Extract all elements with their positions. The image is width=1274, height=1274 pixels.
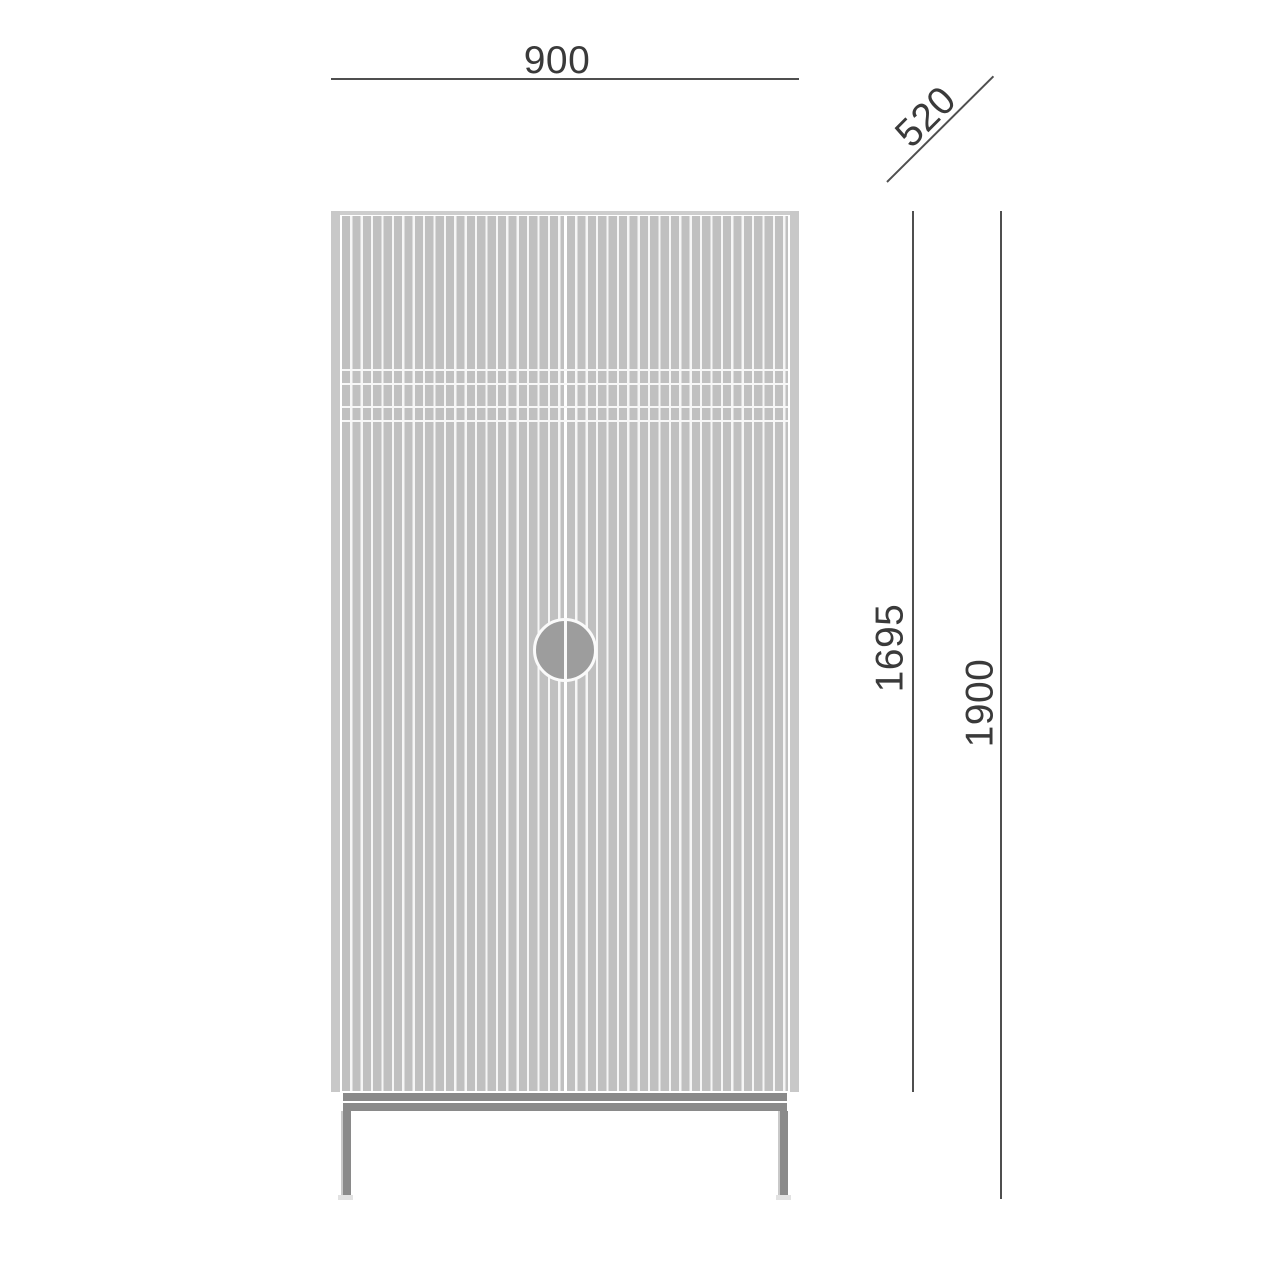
right-foot xyxy=(776,1195,791,1200)
body-height-dimension-line xyxy=(912,211,914,1092)
left-leg xyxy=(341,1111,351,1195)
handle-split-line xyxy=(564,621,567,679)
right-side-panel xyxy=(790,211,799,1092)
door-handle xyxy=(533,618,597,682)
groove-line xyxy=(342,369,788,371)
width-dimension-label: 900 xyxy=(524,41,591,80)
left-door xyxy=(342,216,564,1091)
base-rail-lower-bar xyxy=(343,1103,787,1111)
groove-line xyxy=(342,420,788,422)
total-height-dimension-label: 1900 xyxy=(961,659,1000,748)
left-side-panel xyxy=(331,211,340,1092)
groove-line xyxy=(342,383,788,385)
width-dimension-line xyxy=(331,78,799,80)
body-height-dimension-label: 1695 xyxy=(871,604,910,693)
left-foot xyxy=(338,1195,353,1200)
right-door xyxy=(567,216,788,1091)
groove-line xyxy=(342,406,788,408)
base-rail xyxy=(343,1093,787,1111)
top-panel-edge xyxy=(340,211,790,215)
total-height-dimension-line xyxy=(1000,211,1002,1199)
right-leg xyxy=(778,1111,788,1195)
base-rail-upper-bar xyxy=(343,1093,787,1101)
technical-drawing-canvas: 900 520 1695 1900 xyxy=(0,0,1274,1274)
